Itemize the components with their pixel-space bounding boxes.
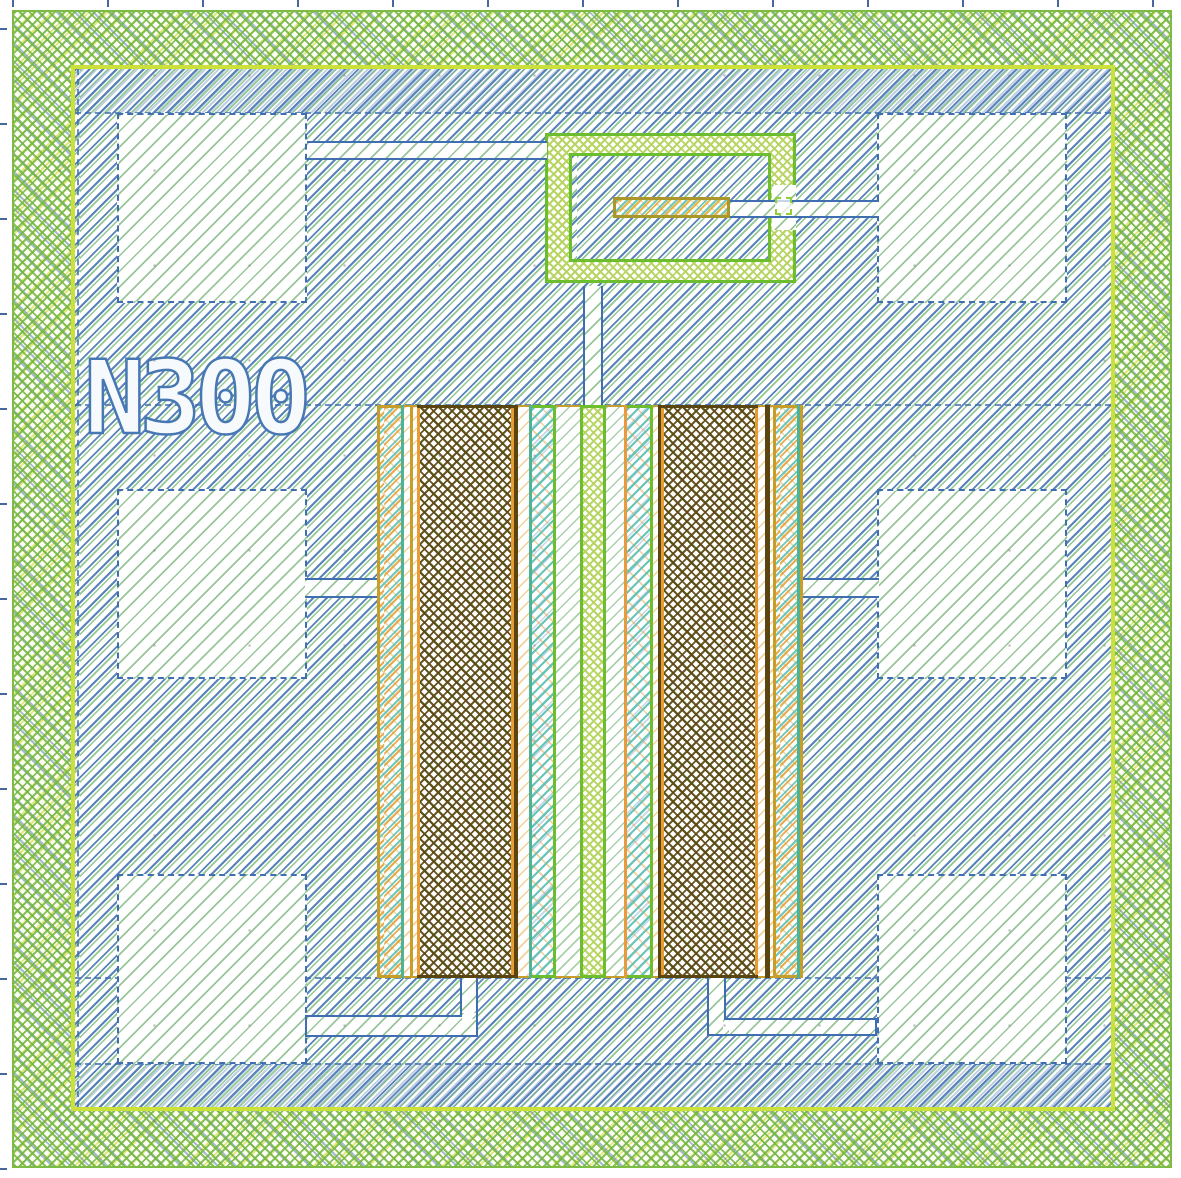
pad-mid-left[interactable] [117, 489, 307, 679]
ruler-tick-left [0, 693, 7, 695]
transistor-column-ws-8[interactable] [518, 405, 529, 978]
ruler-tick-top [1152, 0, 1154, 7]
ruler-tick-left [0, 313, 7, 315]
trace-guard-ring-to-gate[interactable] [583, 286, 603, 407]
ruler-tick-top [392, 0, 394, 7]
ruler-tick-top [962, 0, 964, 7]
trace-topleft-pad-to-guard-ring[interactable] [307, 141, 547, 160]
trace-bottomright-horizontal[interactable] [726, 1018, 877, 1036]
ruler-tick-top [772, 0, 774, 7]
transistor-column-ochre-29[interactable] [800, 405, 803, 978]
ruler-tick-left [0, 123, 7, 125]
transistor-column-sd-27[interactable] [776, 405, 797, 978]
metal-dense-strip [75, 69, 1111, 113]
trace-join-patch [723, 1020, 729, 1034]
ruler-tick-left [0, 503, 7, 505]
trace-structure-to-midright-pad[interactable] [801, 578, 879, 598]
ruler-tick-top [487, 0, 489, 7]
ruler-tick-left [0, 218, 7, 220]
transistor-column-sd-1[interactable] [380, 405, 401, 978]
ruler-tick-top [582, 0, 584, 7]
trace-midleft-pad-to-structure[interactable] [305, 578, 379, 598]
ruler-tick-left [0, 978, 7, 980]
transistor-column-dark-22[interactable] [661, 405, 758, 978]
ruler-tick-left [0, 408, 7, 410]
pad-mid-right[interactable] [877, 489, 1067, 679]
layer-boundary-line [77, 69, 79, 1107]
transistor-column-wsg-12[interactable] [556, 405, 580, 978]
transistor-column-wsg-16[interactable] [606, 405, 624, 978]
pad-bottom-left[interactable] [117, 874, 307, 1064]
transistor-column-ws-23[interactable] [758, 405, 765, 978]
ruler-tick-left [0, 598, 7, 600]
transistor-column-teal-18[interactable] [627, 405, 650, 978]
transistor-column-poly-14[interactable] [583, 405, 603, 978]
ruler-tick-top [677, 0, 679, 7]
ruler-tick-top [297, 0, 299, 7]
ruler-tick-top [867, 0, 869, 7]
transistor-column-teal-10[interactable] [532, 405, 553, 978]
ruler-tick-top [107, 0, 109, 7]
guard-ring-inner-bar[interactable] [613, 197, 730, 218]
ruler-tick-left [0, 788, 7, 790]
ruler-tick-left [0, 1168, 7, 1170]
trace-bottomleft-horizontal[interactable] [305, 1015, 478, 1037]
transistor-column-dark-6[interactable] [417, 405, 514, 978]
pad-top-left[interactable] [117, 113, 307, 303]
trace-bottomleft-vertical[interactable] [460, 976, 478, 1017]
pad-bottom-right[interactable] [877, 874, 1067, 1064]
pad-top-right[interactable] [877, 113, 1067, 303]
layout-canvas[interactable]: N300 [0, 0, 1181, 1178]
ruler-tick-left [0, 28, 7, 30]
ruler-tick-top [202, 0, 204, 7]
trace-join-patch [462, 1013, 476, 1019]
ruler-tick-left [0, 1073, 7, 1075]
ruler-tick-top [1057, 0, 1059, 7]
guard-ring-contact[interactable] [775, 197, 792, 215]
metal-dense-strip [75, 1063, 1111, 1107]
ruler-tick-left [0, 883, 7, 885]
ruler-tick-top [12, 0, 14, 7]
cell-label[interactable]: N300 [84, 348, 306, 450]
trace-bar-to-topright-pad[interactable] [730, 200, 879, 218]
